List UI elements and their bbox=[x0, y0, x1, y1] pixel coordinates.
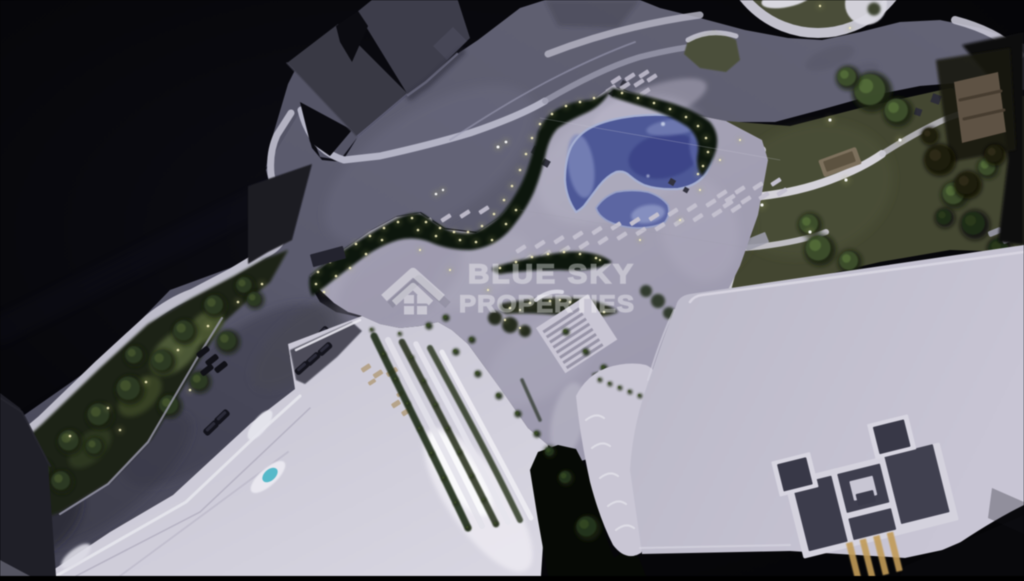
svg-text:PROPERTIES: PROPERTIES bbox=[459, 291, 635, 318]
svg-text:BLUE SKY: BLUE SKY bbox=[468, 259, 635, 289]
